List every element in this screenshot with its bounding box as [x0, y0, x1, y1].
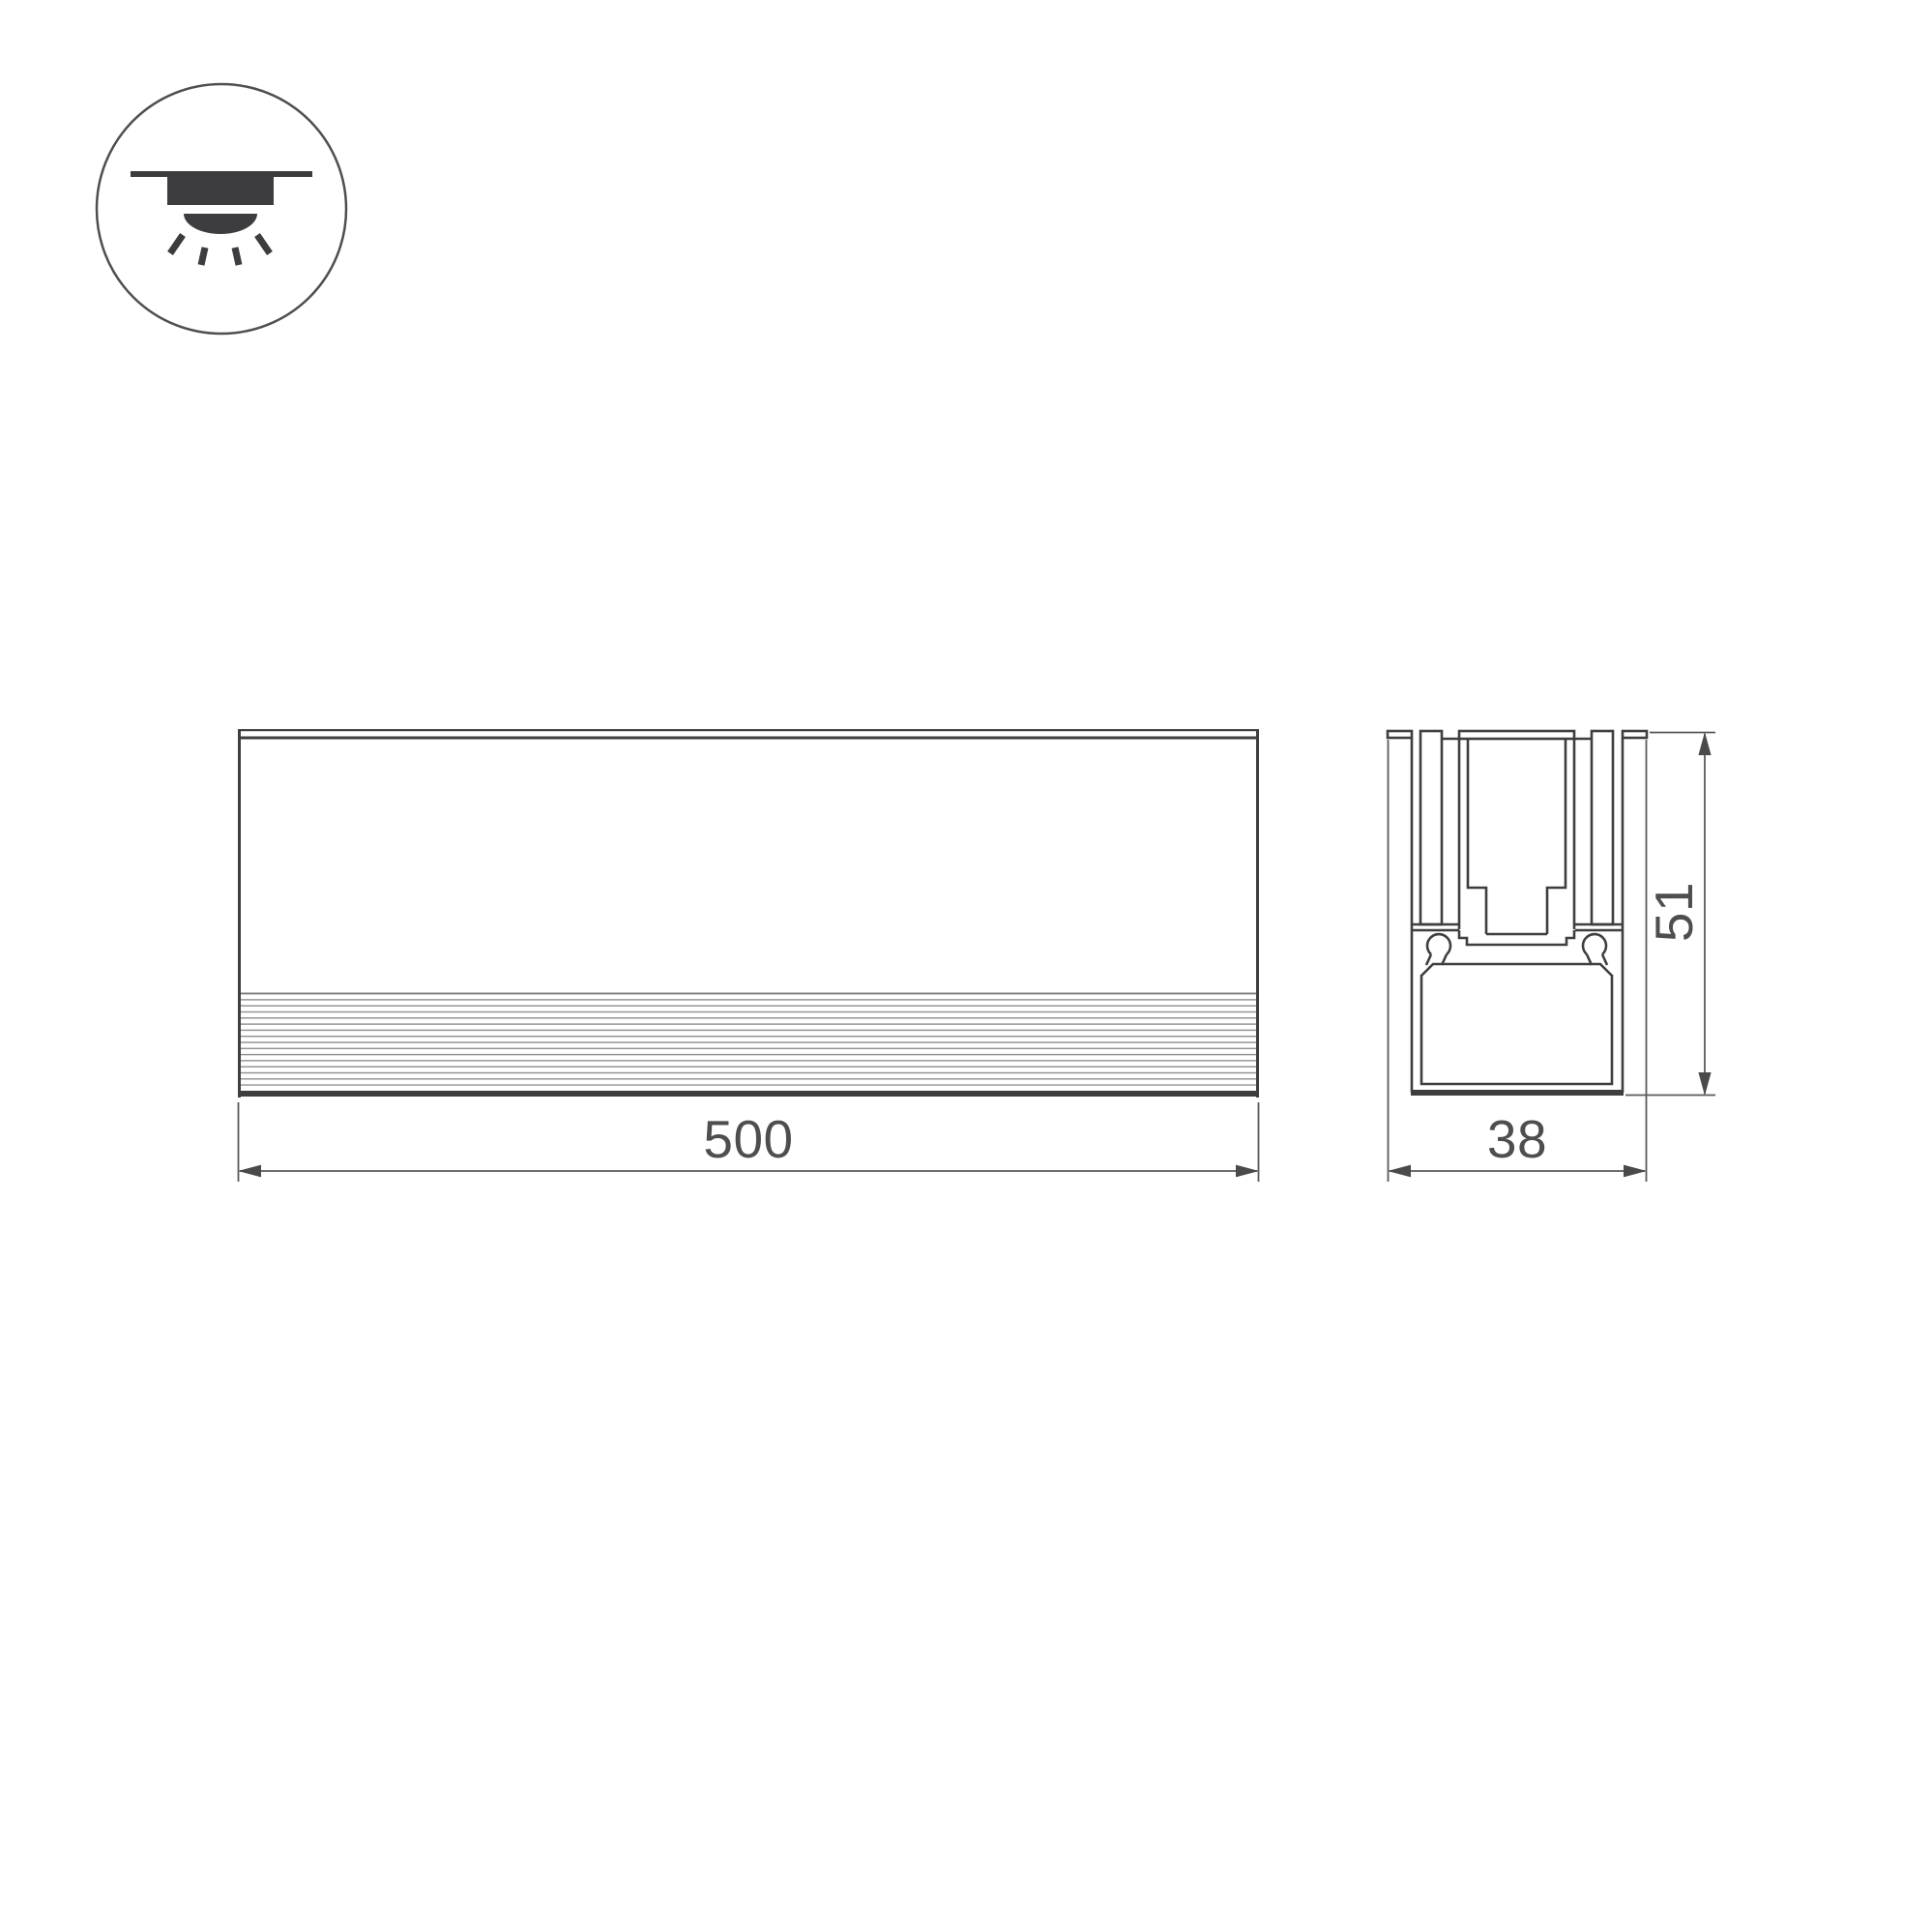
front-bottom-edge: [238, 1091, 1259, 1097]
arrowhead-right: [1236, 1165, 1259, 1178]
screw-boss-left: [1426, 934, 1450, 965]
length-dimension-label: 500: [703, 1109, 793, 1169]
dimension-height-51: 51: [1625, 732, 1715, 1096]
arrowhead-left: [1388, 1165, 1411, 1178]
light-ray-icon: [235, 248, 239, 265]
front-top-inner-line: [238, 737, 1259, 740]
led-channel-right-step: [1547, 738, 1566, 934]
recessed-ceiling-downlight-icon: [97, 84, 346, 334]
dimension-length-500: 500: [238, 1102, 1259, 1182]
ribbed-band-top-line: [241, 993, 1256, 995]
section-left-flange: [1388, 731, 1412, 738]
section-center-cap: [1459, 731, 1574, 739]
light-ray-icon: [170, 235, 183, 253]
technical-drawing-canvas: 500 38 51: [0, 0, 1932, 1932]
led-channel-left-step: [1468, 738, 1486, 934]
section-right-inner-wall: [1592, 731, 1613, 924]
front-left-edge: [238, 729, 241, 1098]
height-dimension-label: 51: [1644, 882, 1704, 942]
ribbed-diffuser-band: [241, 993, 1256, 1086]
screw-boss-right: [1583, 934, 1607, 965]
cavity-walls-and-inner-bottom: [1421, 975, 1612, 1084]
section-left-inner-wall: [1420, 731, 1442, 924]
arrowhead-top: [1698, 732, 1711, 755]
section-bottom-edge: [1411, 1090, 1624, 1096]
front-top-edge: [238, 729, 1259, 731]
cavity-top-line: [1421, 964, 1612, 976]
light-dome: [184, 214, 257, 234]
arrowhead-bottom: [1698, 1072, 1711, 1096]
width-dimension-label: 38: [1487, 1109, 1547, 1169]
arrowhead-right: [1624, 1165, 1647, 1178]
light-ray-icon: [201, 248, 205, 265]
front-view: [238, 729, 1259, 1098]
icon-circle-outline: [97, 84, 346, 334]
light-ray-icon: [257, 235, 270, 253]
led-channel-tray-bottom: [1459, 930, 1574, 945]
cross-section-view: [1388, 731, 1647, 1096]
front-right-edge: [1256, 729, 1259, 1098]
dimension-width-38: 38: [1388, 740, 1647, 1182]
recessed-fixture-body: [167, 171, 274, 205]
arrowhead-left: [238, 1165, 261, 1178]
section-right-flange: [1623, 731, 1647, 738]
